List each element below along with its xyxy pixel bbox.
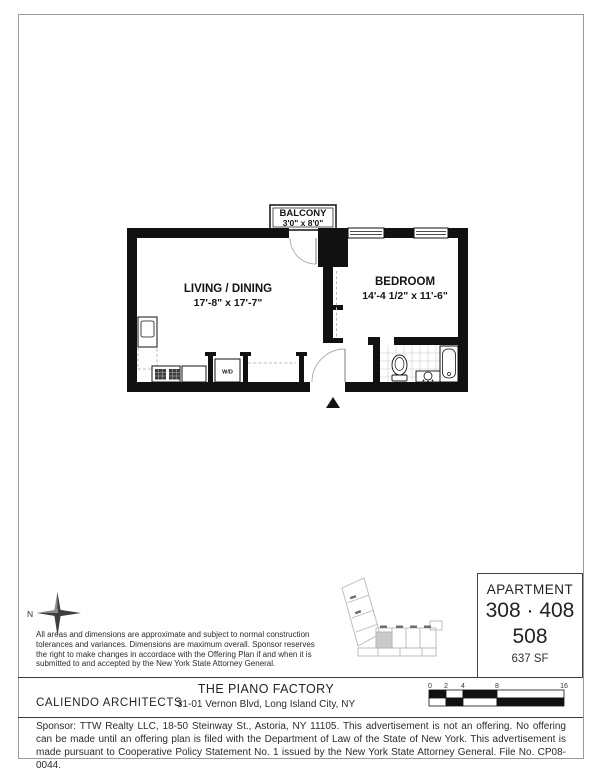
sponsor-legal-text: Sponsor: TTW Realty LLC, 18-50 Steinway …: [36, 721, 566, 773]
bedroom-label: BEDROOM: [375, 276, 435, 288]
scale-bar: 0 2 4 8 16: [427, 680, 569, 708]
scale-tick: 16: [560, 683, 568, 690]
key-plan: [334, 576, 446, 672]
scale-tick: 2: [444, 683, 448, 690]
entry-door: [312, 349, 345, 382]
building-name: THE PIANO FACTORY: [146, 682, 386, 696]
disclaimer-line: the right to make changes in accordace w…: [36, 650, 315, 660]
washer-dryer-label: W/D: [222, 370, 233, 376]
key-plan-highlight-unit: [376, 632, 392, 648]
entry-marker-icon: [326, 397, 340, 408]
apartment-heading: APARTMENT: [478, 582, 582, 597]
bedroom-dims: 14'-4 1/2" x 11'-6": [362, 290, 448, 302]
compass-north-label: N: [27, 609, 33, 619]
building-address: 31-01 Vernon Blvd, Long Island City, NY: [146, 699, 386, 710]
balcony-door: [290, 238, 316, 264]
footer-divider-top: [18, 677, 583, 678]
living-label: LIVING / DINING: [184, 283, 272, 295]
scale-tick: 8: [495, 683, 499, 690]
apartment-units-line2: 508: [478, 625, 582, 649]
disclaimer-text: All areas and dimensions are approximate…: [36, 630, 315, 669]
disclaimer-line: submitted to and accepted by the New Yor…: [36, 659, 315, 669]
bathroom: [380, 345, 458, 382]
disclaimer-line: tolerances and variances. Dimensions are…: [36, 640, 315, 650]
disclaimer-line: All areas and dimensions are approximate…: [36, 630, 315, 640]
living-dims: 17'-8" x 17'-7": [194, 297, 263, 309]
footer-divider-bottom: [18, 717, 583, 718]
floor-plan-drawing: W/D BALCONY 3'0" x 8'0" LIVING / DINING …: [115, 195, 475, 415]
apartment-units-line1: 308 · 408: [478, 599, 582, 623]
balcony-dims: 3'0" x 8'0": [283, 218, 323, 228]
scale-tick: 4: [461, 683, 465, 690]
scale-tick: 0: [428, 683, 432, 690]
apartment-area: 637 SF: [478, 653, 582, 665]
floorplan-page: W/D BALCONY 3'0" x 8'0" LIVING / DINING …: [0, 0, 600, 776]
apartment-info-box: APARTMENT 308 · 408 508 637 SF: [477, 573, 583, 678]
title-block: THE PIANO FACTORY 31-01 Vernon Blvd, Lon…: [146, 682, 386, 710]
